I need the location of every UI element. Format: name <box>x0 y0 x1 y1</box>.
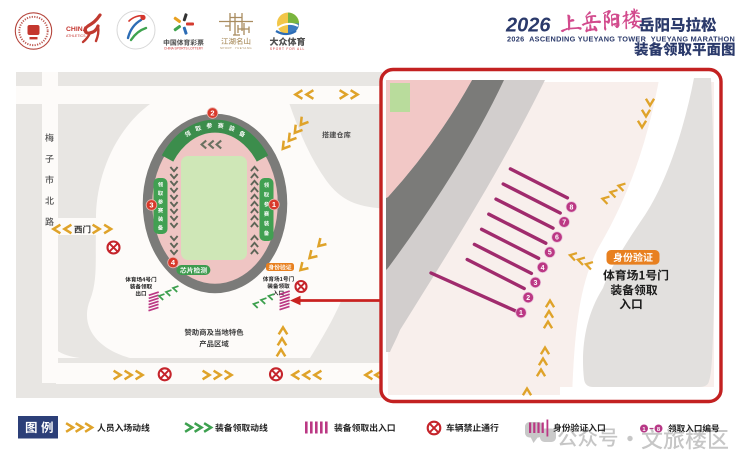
svg-text:ATHLETICS: ATHLETICS <box>66 34 86 38</box>
svg-text:SPORT YUEYANG: SPORT YUEYANG <box>220 46 252 50</box>
svg-text:CHINA: CHINA <box>66 26 88 33</box>
svg-text:8: 8 <box>569 204 573 211</box>
svg-text:2: 2 <box>210 109 214 118</box>
svg-text:3: 3 <box>149 201 153 210</box>
svg-text:2026 ASCENDING YUEYANG TOWER: 2026 ASCENDING YUEYANG TOWER YUEYANG MAR… <box>507 35 735 44</box>
svg-text:2: 2 <box>526 295 530 302</box>
svg-text:1: 1 <box>272 200 276 209</box>
svg-text:1: 1 <box>519 310 523 317</box>
svg-text:2026: 2026 <box>505 15 551 37</box>
svg-text:3: 3 <box>533 280 537 287</box>
svg-text:6: 6 <box>555 235 559 242</box>
svg-text:SPORT FOR ALL: SPORT FOR ALL <box>270 47 305 51</box>
svg-text:7: 7 <box>562 220 566 227</box>
svg-text:CHINA SPORTS LOTTERY: CHINA SPORTS LOTTERY <box>164 47 204 51</box>
svg-text:5: 5 <box>548 250 552 257</box>
svg-text:4: 4 <box>541 265 545 272</box>
